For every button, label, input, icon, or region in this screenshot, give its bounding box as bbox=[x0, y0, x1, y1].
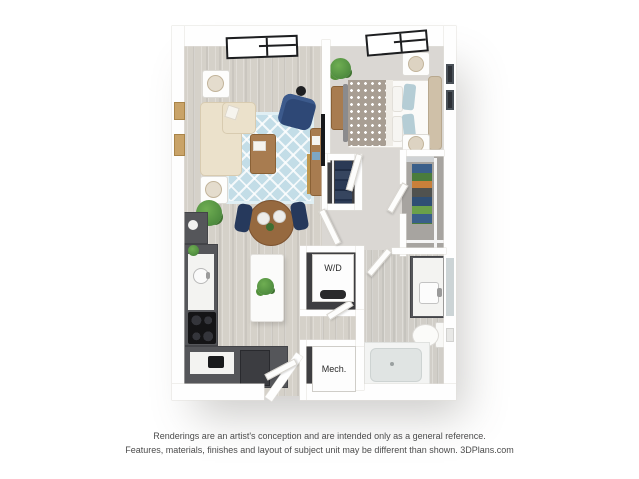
wall-bathroom-top bbox=[392, 248, 446, 254]
bedroom-art-frame-1 bbox=[446, 64, 454, 84]
floor-plan-rendering: W/D Mech. Renderings are an artist's con… bbox=[0, 0, 639, 479]
headboard bbox=[428, 76, 442, 150]
refrigerator bbox=[240, 350, 270, 386]
bathtub bbox=[370, 348, 422, 382]
washer-front bbox=[320, 290, 346, 299]
wall-wd-left bbox=[300, 246, 306, 316]
walkin-top-shelf bbox=[404, 156, 434, 162]
bedroom-art-frame-2 bbox=[446, 90, 454, 110]
living-room-window bbox=[226, 35, 299, 59]
wall-walkin-top bbox=[400, 150, 444, 156]
vanity-faucet bbox=[437, 288, 442, 297]
floor-lamp-head bbox=[296, 86, 306, 96]
outer-wall-left bbox=[172, 26, 184, 400]
coffee-table bbox=[250, 134, 276, 174]
disclaimer-line-1: Renderings are an artist's conception an… bbox=[0, 429, 639, 443]
bathroom-mirror bbox=[446, 258, 454, 316]
mechanical-unit: Mech. bbox=[312, 346, 356, 392]
vanity-sink bbox=[419, 282, 439, 304]
mechanical-label: Mech. bbox=[322, 364, 347, 374]
table-lamp-top bbox=[207, 75, 224, 92]
nightstand-lamp-top bbox=[408, 56, 424, 72]
console-decor-blue bbox=[312, 152, 320, 160]
wall-tv bbox=[321, 114, 325, 166]
reachin-closet-rod bbox=[332, 160, 334, 206]
towel-holder bbox=[446, 328, 454, 342]
disclaimer-line-2: Features, materials, finishes and layout… bbox=[0, 443, 639, 457]
gold-floor-lamp bbox=[307, 154, 310, 194]
bathtub-drain bbox=[390, 362, 394, 366]
disclaimer: Renderings are an artist's conception an… bbox=[0, 429, 639, 457]
wall-wd-top bbox=[300, 246, 364, 252]
island-plant bbox=[257, 278, 274, 295]
bedroom-plant bbox=[330, 58, 351, 79]
kitchen-sink-2 bbox=[208, 356, 224, 368]
cooktop bbox=[188, 312, 216, 344]
washer-dryer-label: W/D bbox=[324, 263, 342, 273]
wall-walkin-left-upper bbox=[400, 150, 406, 184]
wall-wd-right bbox=[356, 246, 364, 316]
bed-bench bbox=[343, 84, 348, 142]
dining-centerpiece bbox=[266, 223, 274, 231]
kitchen-faucet bbox=[206, 272, 210, 279]
living-art-frame-2 bbox=[174, 134, 185, 156]
wall-bath-hall-divider bbox=[356, 310, 364, 346]
pantry-decor-bowl bbox=[188, 220, 198, 230]
walkin-shelf-rail bbox=[434, 158, 437, 248]
wall-mech-right bbox=[356, 340, 364, 390]
bed-duvet bbox=[348, 80, 386, 146]
table-lamp-bottom bbox=[205, 181, 222, 198]
walkin-clothes bbox=[412, 164, 432, 224]
living-art-frame-1 bbox=[174, 102, 185, 120]
outer-wall-bottom-left bbox=[172, 384, 264, 400]
walkin-bottom-shelf bbox=[406, 240, 444, 243]
wall-mech-left bbox=[300, 340, 306, 400]
kitchen-counter-plant bbox=[188, 245, 199, 256]
console-decor-white bbox=[312, 136, 320, 145]
coffee-table-books bbox=[253, 141, 266, 151]
dining-plate-2 bbox=[273, 210, 286, 223]
